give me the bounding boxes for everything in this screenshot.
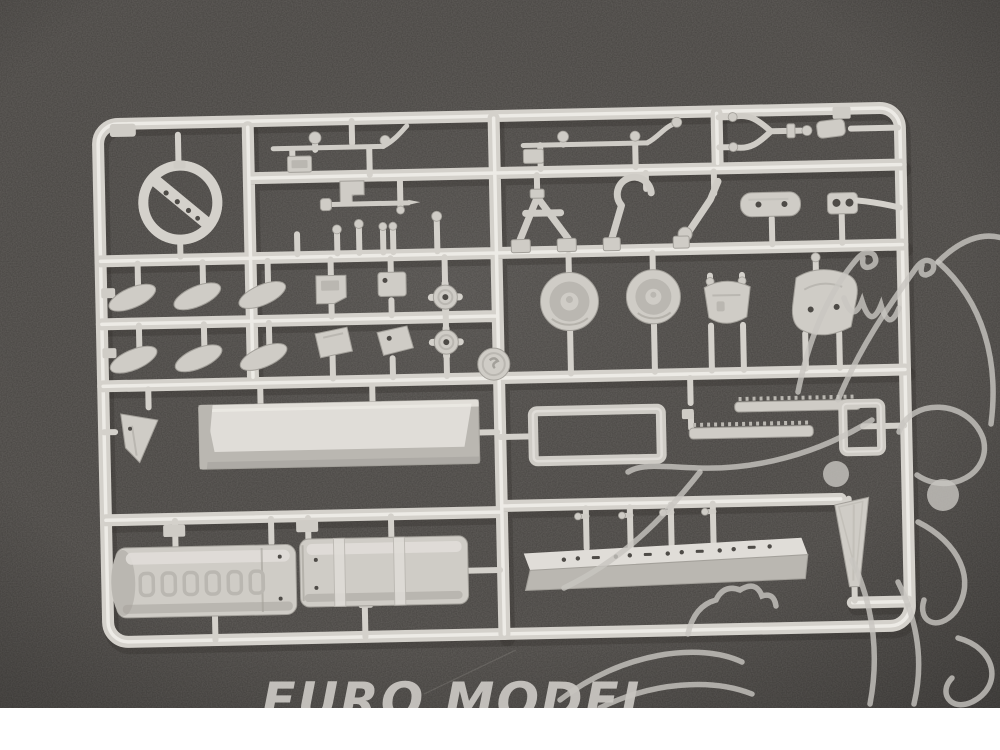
dome-hatch-part <box>540 272 599 331</box>
fuel-tank-half-part <box>299 536 468 608</box>
bottom-white-strip <box>0 708 1000 750</box>
dome-hatch-part <box>626 269 681 324</box>
mascot-eye-pupil <box>823 461 849 487</box>
bracket-shield-part <box>704 277 751 324</box>
plate-part <box>740 192 800 217</box>
sprue-letter-stamp <box>477 348 510 381</box>
product-photo: Unassembled plastic model kit sprue with… <box>0 0 1000 750</box>
mascot-eye-pupil <box>927 479 959 511</box>
tray-part <box>199 399 480 469</box>
fuel-tank-half-part <box>111 544 297 618</box>
